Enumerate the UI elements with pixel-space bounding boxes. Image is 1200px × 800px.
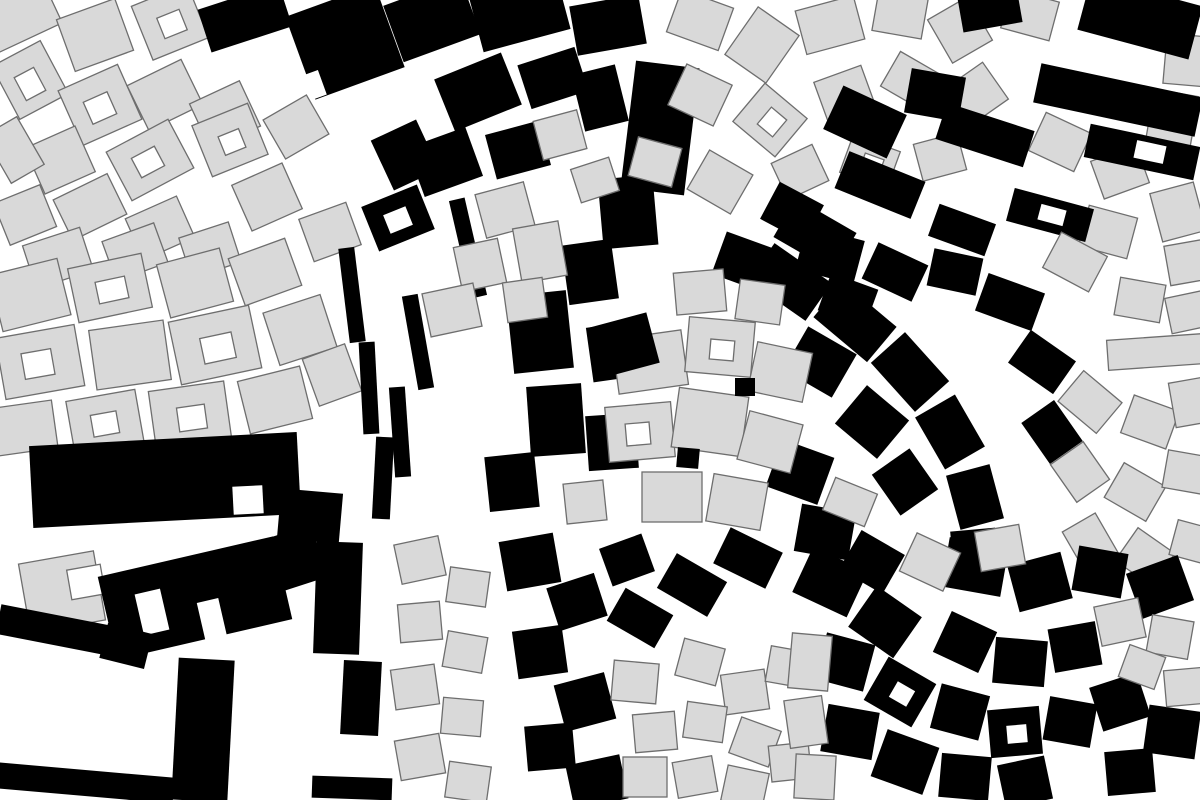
building-gray	[446, 567, 490, 607]
courtyard	[1006, 724, 1027, 744]
building-black	[313, 541, 363, 655]
building-gray	[442, 631, 488, 673]
building-black	[820, 704, 880, 760]
building-gray	[671, 387, 749, 456]
figure-ground-map	[0, 0, 1200, 800]
building-black	[484, 452, 539, 512]
courtyard	[709, 339, 735, 361]
building-black	[938, 753, 992, 800]
building-gray	[453, 238, 506, 291]
building-black	[526, 383, 586, 457]
building-black	[524, 722, 576, 771]
building-gray	[623, 757, 667, 797]
building-black	[312, 776, 393, 800]
courtyard	[232, 485, 263, 515]
building-black	[340, 660, 382, 736]
building-gray	[390, 664, 439, 710]
building-gray	[974, 524, 1025, 571]
building-black	[171, 658, 234, 800]
building-gray	[394, 536, 446, 584]
building-gray	[394, 733, 445, 780]
building-gray	[563, 480, 607, 524]
building-black	[992, 637, 1048, 687]
building-gray	[788, 633, 833, 691]
building-gray	[706, 474, 768, 531]
building-black	[1071, 546, 1128, 599]
building-black	[512, 625, 568, 679]
building-gray	[747, 342, 812, 403]
building-gray	[441, 697, 484, 736]
building-gray	[1114, 277, 1166, 322]
building-black	[29, 432, 301, 528]
building-gray	[632, 711, 677, 753]
figure-ground-svg	[0, 0, 1200, 800]
building-gray	[611, 660, 659, 704]
building-gray	[683, 701, 728, 742]
building-black	[1043, 696, 1098, 748]
courtyard	[21, 349, 55, 380]
building-gray	[397, 601, 442, 643]
building-black	[904, 68, 966, 122]
building-black	[499, 533, 562, 592]
building-gray	[1162, 450, 1200, 494]
building-gray	[1164, 238, 1200, 285]
building-gray	[784, 696, 828, 749]
building-gray	[1107, 334, 1200, 371]
building-black	[1104, 748, 1156, 796]
building-gray	[735, 279, 785, 325]
building-gray	[89, 320, 172, 390]
building-gray	[673, 269, 726, 315]
building-black	[1048, 621, 1103, 673]
building-gray	[513, 221, 568, 283]
building-gray	[672, 756, 718, 798]
courtyard	[90, 411, 119, 437]
building-gray	[1164, 667, 1200, 706]
building-gray	[1094, 598, 1146, 646]
building-black	[735, 378, 755, 396]
building-gray	[642, 472, 702, 522]
courtyard	[625, 422, 651, 446]
building-gray	[502, 277, 547, 322]
building-gray	[445, 761, 492, 800]
building-black	[676, 447, 700, 469]
courtyard	[176, 404, 207, 432]
building-black	[561, 239, 619, 305]
building-gray	[794, 754, 836, 800]
